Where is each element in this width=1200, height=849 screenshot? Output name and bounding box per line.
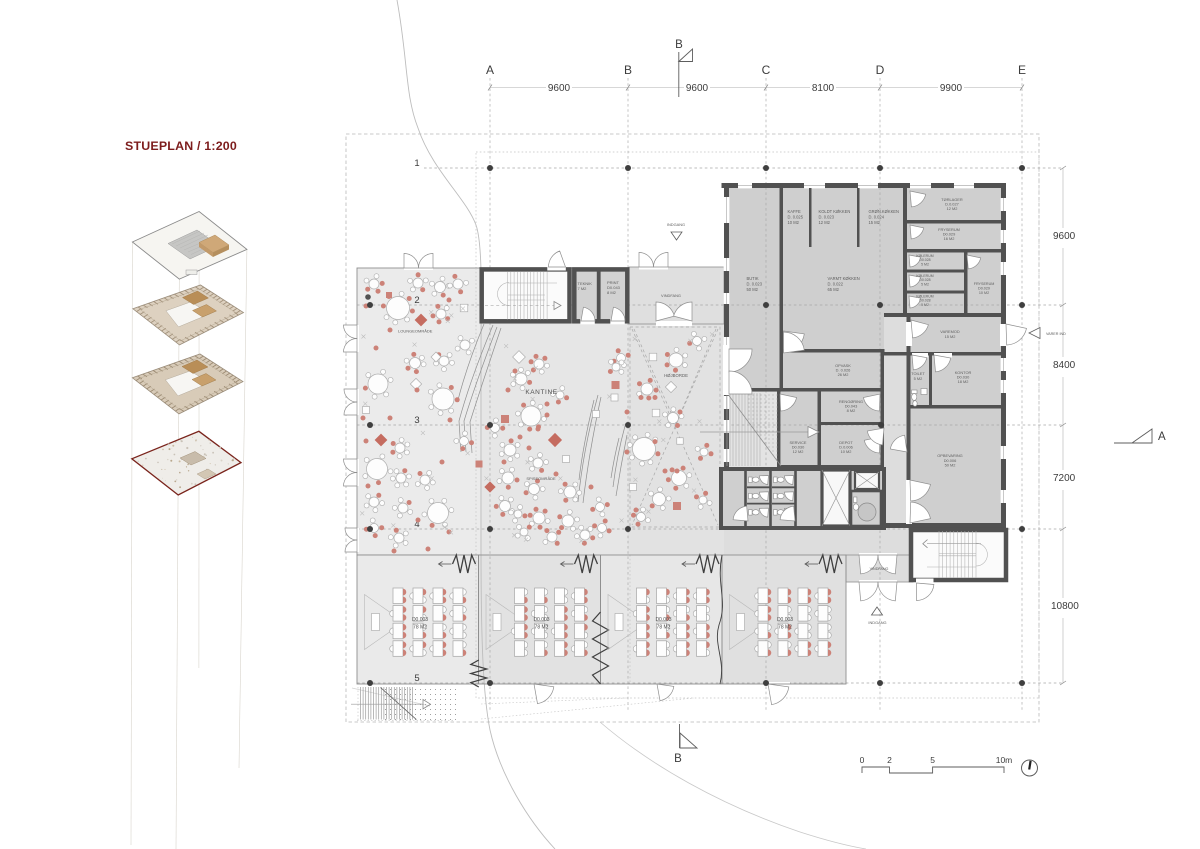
svg-text:D. 0.025: D. 0.025 [788, 215, 804, 220]
svg-text:15 M2: 15 M2 [945, 334, 956, 339]
svg-text:65 M2: 65 M2 [828, 287, 840, 292]
svg-text:5 M2: 5 M2 [921, 303, 929, 307]
svg-text:B: B [674, 753, 682, 765]
svg-text:D. 0.024: D. 0.024 [869, 215, 885, 220]
svg-text:D. 0.023: D. 0.023 [747, 282, 763, 287]
svg-text:D. 0.022: D. 0.022 [828, 282, 844, 287]
svg-text:10 M2: 10 M2 [788, 220, 800, 225]
svg-text:0: 0 [860, 755, 865, 765]
svg-text:VARMT KØKKEN: VARMT KØKKEN [828, 276, 860, 281]
svg-text:5: 5 [930, 755, 935, 765]
svg-text:7200: 7200 [1053, 473, 1076, 484]
svg-text:78 M2: 78 M2 [535, 625, 549, 631]
svg-text:D: D [876, 63, 885, 77]
svg-text:INDGANG: INDGANG [868, 620, 886, 625]
svg-text:E: E [1018, 63, 1026, 77]
svg-text:GRØN.KØKKEN: GRØN.KØKKEN [869, 209, 900, 214]
svg-text:50 M2: 50 M2 [945, 463, 956, 468]
svg-text:26 M2: 26 M2 [838, 372, 849, 377]
svg-text:5 M2: 5 M2 [914, 376, 923, 381]
svg-text:18 M2: 18 M2 [958, 379, 969, 384]
svg-text:8 M2: 8 M2 [847, 408, 856, 413]
svg-text:78 M2: 78 M2 [778, 625, 792, 631]
svg-text:12 M2: 12 M2 [947, 206, 958, 211]
svg-text:A: A [486, 63, 494, 77]
svg-text:SPISEOMRÅDE: SPISEOMRÅDE [526, 476, 556, 481]
svg-text:12 M2: 12 M2 [819, 220, 831, 225]
svg-text:1: 1 [414, 158, 419, 169]
svg-text:10800: 10800 [1051, 601, 1079, 612]
svg-text:16 M2: 16 M2 [944, 236, 955, 241]
svg-text:INDGANG: INDGANG [667, 222, 685, 227]
svg-text:D0.029: D0.029 [978, 286, 990, 290]
svg-text:D. 0.023: D. 0.023 [819, 215, 835, 220]
svg-text:5 M2: 5 M2 [921, 262, 929, 266]
svg-text:2: 2 [414, 295, 419, 306]
svg-text:STUEPLAN / 1:200: STUEPLAN / 1:200 [125, 139, 237, 153]
svg-text:B: B [675, 39, 683, 51]
svg-text:5: 5 [414, 673, 419, 684]
svg-text:8400: 8400 [1053, 360, 1076, 371]
svg-text:A: A [1158, 431, 1166, 443]
svg-text:KAFFE: KAFFE [788, 209, 801, 214]
svg-text:BUTIK: BUTIK [747, 276, 759, 281]
svg-text:12 M2: 12 M2 [793, 449, 804, 454]
svg-text:C: C [762, 63, 771, 77]
svg-text:2: 2 [887, 755, 892, 765]
svg-text:5 M2: 5 M2 [921, 282, 929, 286]
svg-text:HØJBORDE: HØJBORDE [664, 373, 688, 378]
svg-text:9600: 9600 [548, 83, 571, 94]
svg-text:10 M2: 10 M2 [979, 291, 989, 295]
svg-text:D0.003: D0.003 [533, 617, 549, 623]
svg-text:FRYSERUM: FRYSERUM [974, 282, 995, 286]
svg-text:9900: 9900 [940, 83, 963, 94]
svg-text:VINDFANG: VINDFANG [870, 567, 889, 571]
svg-text:50 M2: 50 M2 [747, 287, 759, 292]
svg-text:KANTINE: KANTINE [525, 389, 557, 396]
svg-text:9600: 9600 [1053, 231, 1076, 242]
svg-text:VINDFANG: VINDFANG [661, 293, 681, 298]
svg-text:LOUNGEOMRÅDE: LOUNGEOMRÅDE [398, 329, 433, 334]
svg-text:D0.003: D0.003 [412, 617, 428, 623]
svg-text:10 M2: 10 M2 [841, 449, 852, 454]
svg-text:78 M2: 78 M2 [657, 625, 671, 631]
svg-text:10m: 10m [996, 755, 1013, 765]
svg-text:B: B [624, 63, 632, 77]
svg-text:D0.003: D0.003 [777, 617, 793, 623]
svg-text:D0.003: D0.003 [655, 617, 671, 623]
svg-text:8 M2: 8 M2 [607, 290, 617, 295]
svg-text:KOLDT KØKKEN: KOLDT KØKKEN [819, 209, 851, 214]
svg-text:7 M2: 7 M2 [578, 286, 588, 291]
svg-text:3: 3 [414, 415, 419, 426]
svg-text:9600: 9600 [686, 83, 709, 94]
svg-text:15 M2: 15 M2 [869, 220, 881, 225]
svg-text:VARER IND: VARER IND [1046, 332, 1066, 336]
svg-text:8100: 8100 [812, 83, 835, 94]
svg-text:78 M2: 78 M2 [413, 625, 427, 631]
